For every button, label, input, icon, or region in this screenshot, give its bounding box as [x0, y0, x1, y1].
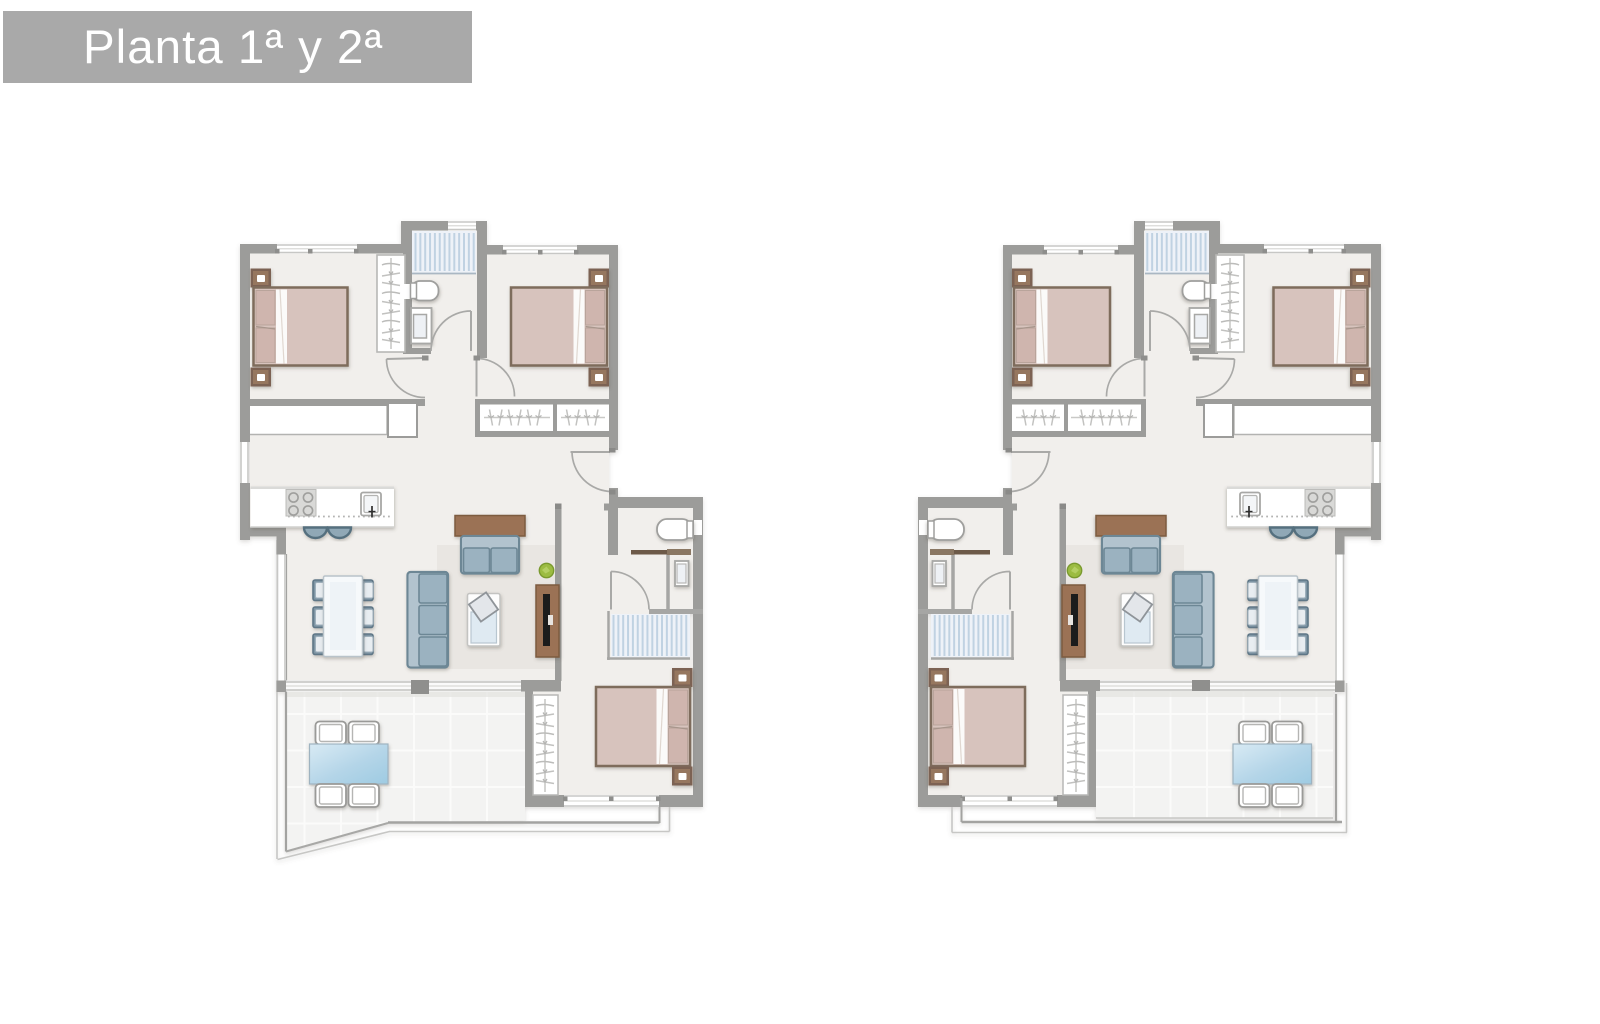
svg-text:Planta 1ª y 2ª: Planta 1ª y 2ª — [83, 21, 383, 74]
